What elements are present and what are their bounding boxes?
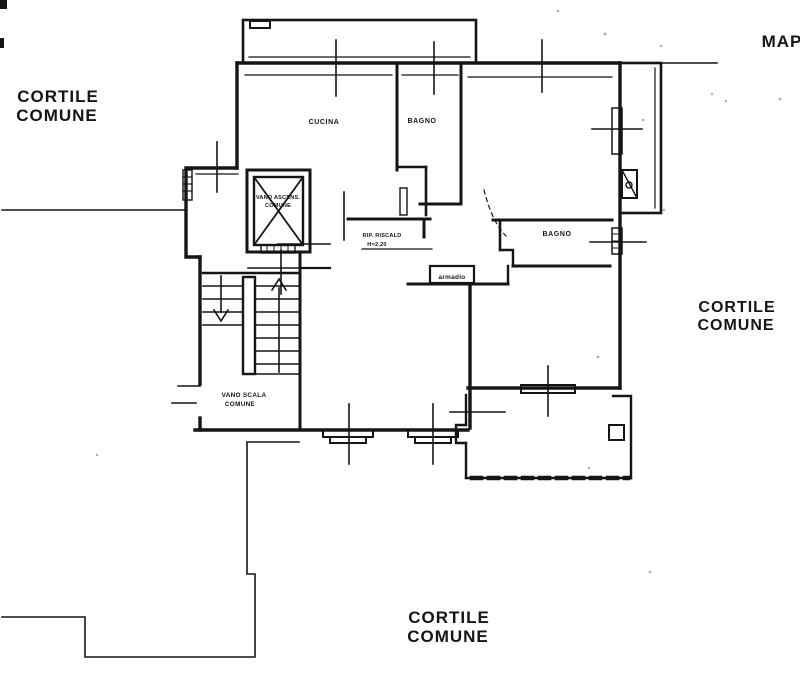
interior-walls (300, 63, 612, 284)
floor-plan-page: CORTILE COMUNE MAP CORTILE COMUNE CORTIL… (0, 0, 800, 676)
courtyard-label-bottom-line2: COMUNE (407, 627, 489, 646)
stairwell-label-line2: COMUNE (225, 401, 256, 408)
floor-plan-drawing: CORTILE COMUNE MAP CORTILE COMUNE CORTIL… (0, 0, 800, 676)
terrace-drain-box (609, 425, 624, 440)
courtyard-label-right-line1: CORTILE (698, 299, 775, 316)
elevator-label-line1: VANO ASCENS. (256, 195, 301, 201)
plan-labels: CORTILE COMUNE MAP CORTILE COMUNE CORTIL… (16, 32, 800, 646)
heater-label-line1: RIP. RISCALD (363, 233, 402, 239)
room-label-bath-top: BAGNO (407, 118, 436, 125)
window-sill (330, 437, 366, 443)
door-swing-dashed (484, 190, 506, 236)
heater-label-line2: H=2,20 (367, 242, 386, 248)
inner-ledge-lines (196, 75, 612, 174)
elevator-label-line2: COMUNE (265, 203, 291, 209)
elevator-shaft (247, 170, 310, 253)
scan-mark-left-edge (0, 38, 4, 48)
bottom-window-sills (323, 385, 575, 443)
right-balcony (620, 63, 661, 213)
stair-treads-right (255, 286, 300, 374)
scan-mark-corner (0, 0, 7, 9)
room-label-kitchen: CUCINA (309, 119, 340, 126)
room-label-bath-right: BAGNO (542, 231, 571, 238)
terrace-right-wall (613, 396, 631, 478)
courtyard-label-top-left-line2: COMUNE (16, 106, 98, 125)
bath-right-step (500, 250, 513, 266)
courtyard-label-bottom-line1: CORTILE (408, 608, 490, 627)
window-ticks (217, 40, 646, 464)
wardrobe-label: armadio (439, 274, 466, 281)
stairwell-door-marks (172, 386, 200, 403)
map-label: MAP (762, 32, 800, 51)
balcony-pillar-mark (250, 21, 270, 28)
flue-diagonal (622, 170, 637, 198)
courtyard-label-right-line2: COMUNE (697, 317, 774, 334)
courtyard-line-bottom-left (2, 442, 299, 657)
stairwell-label-line1: VANO SCALA (222, 392, 267, 399)
courtyard-label-top-left-line1: CORTILE (17, 87, 99, 106)
stair-center-spine (243, 277, 255, 374)
heater-closet-door-leaf (400, 188, 407, 215)
top-balcony (243, 20, 476, 63)
terrace (456, 395, 631, 478)
vestibule-outline (186, 168, 237, 257)
